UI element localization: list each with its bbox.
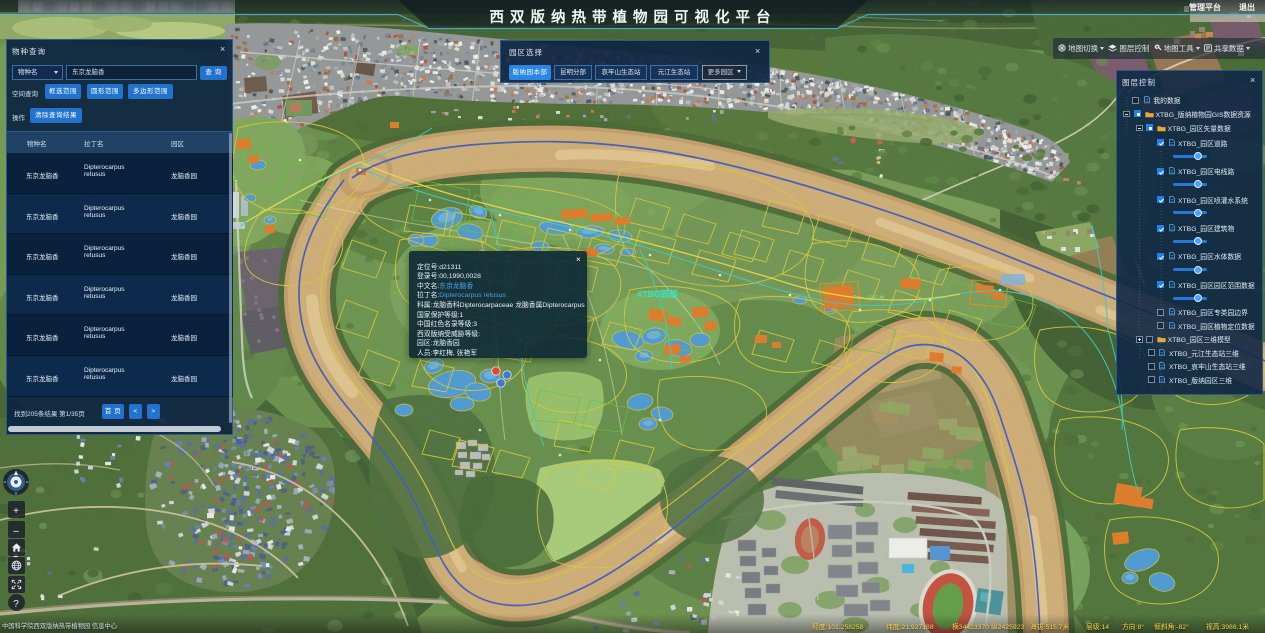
- svg-text:XTBG园部: XTBG园部: [637, 289, 678, 299]
- svg-text:绿石林: 绿石林: [868, 294, 885, 302]
